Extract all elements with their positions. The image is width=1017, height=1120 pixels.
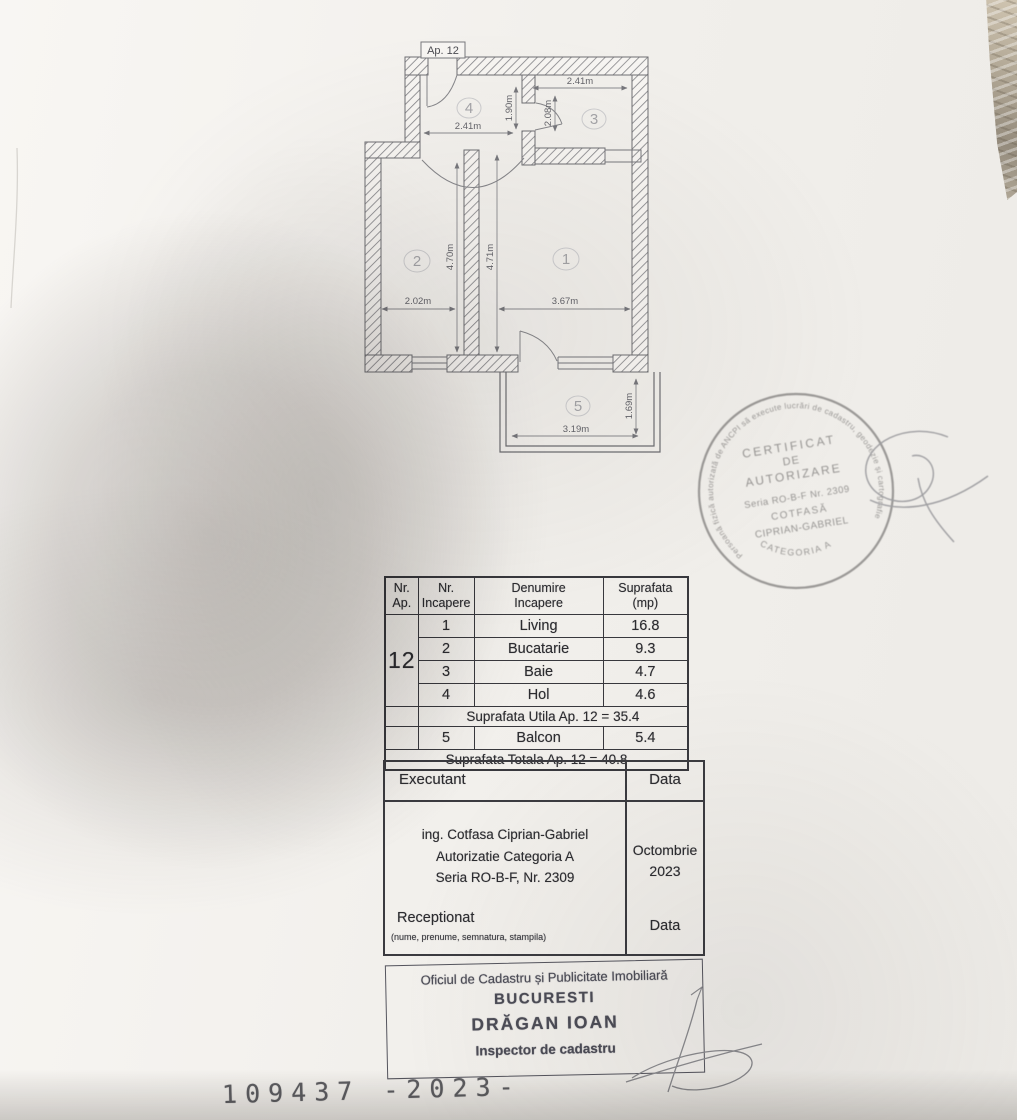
- overlay-marks: [0, 0, 1017, 1120]
- paper-edge-line: [11, 148, 17, 308]
- inspector-signature: [626, 987, 762, 1092]
- scanned-cadastral-document: 2.41m 1.90m 2.41m 2.08m 4.70m 4.71m 2.02…: [0, 0, 1017, 1120]
